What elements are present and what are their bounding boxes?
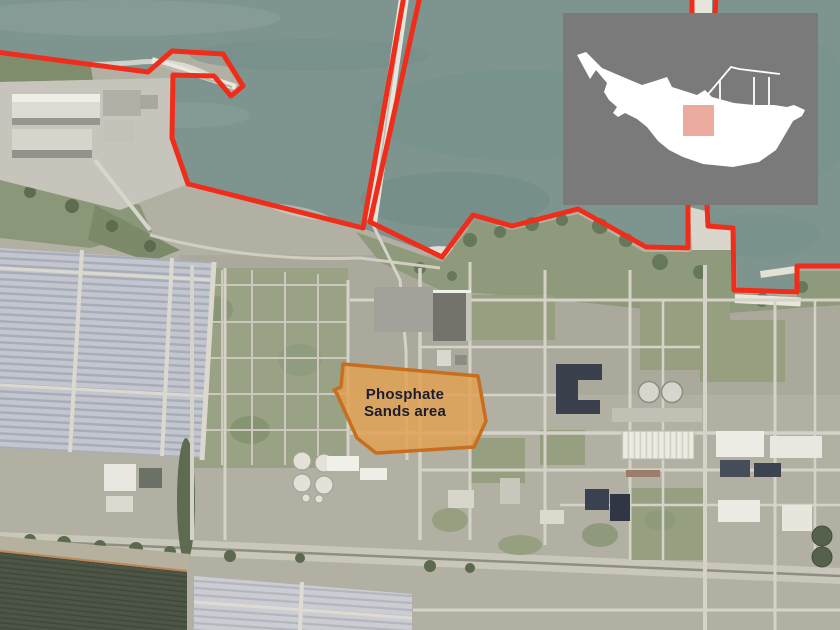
- phosphate-area-label-line2: Sands area: [337, 403, 473, 420]
- phosphate-area-label: Phosphate Sands area: [337, 386, 473, 420]
- greenhouses-west: [0, 248, 214, 460]
- satellite-map: Phosphate Sands area: [0, 0, 840, 630]
- inset-highlight-marker: [683, 105, 714, 136]
- inset-locator-map: [563, 13, 818, 205]
- phosphate-area-label-line1: Phosphate: [337, 386, 473, 403]
